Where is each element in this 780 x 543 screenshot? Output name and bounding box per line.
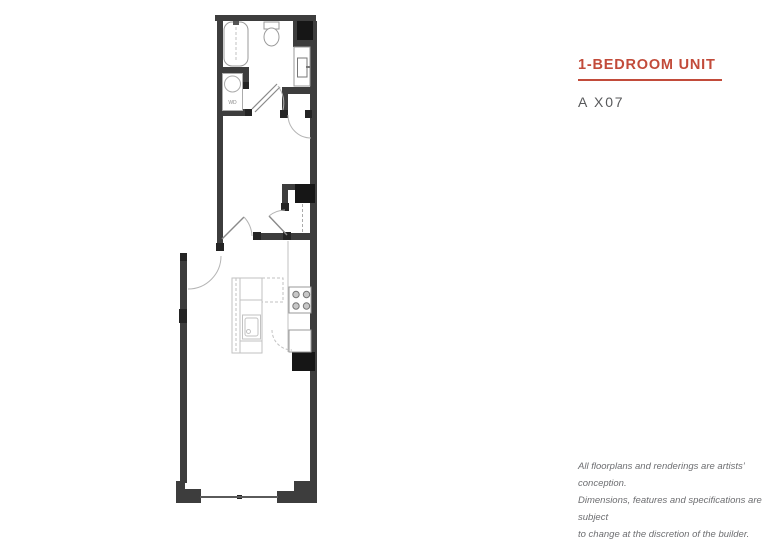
vanity-faucet-icon xyxy=(306,66,310,68)
title-underline xyxy=(578,79,722,81)
toilet-bowl xyxy=(264,28,279,46)
bedroom-entry-door-arc xyxy=(288,115,311,138)
bathroom-door-leaf xyxy=(252,84,277,109)
walls xyxy=(176,15,317,503)
bathroom-door-leaf2 xyxy=(255,87,280,112)
window-line xyxy=(200,496,278,498)
bathtub-faucet-icon xyxy=(233,21,239,25)
page-title: 1-BEDROOM UNIT xyxy=(578,57,778,73)
washer-drum xyxy=(225,76,241,92)
burner xyxy=(303,291,309,297)
burner xyxy=(293,291,299,297)
disclaimer-line: All floorplans and renderings are artist… xyxy=(578,458,768,492)
info-panel: 1-BEDROOM UNIT A X07 xyxy=(578,57,778,110)
unit-entry-door-arc xyxy=(188,256,221,289)
burner xyxy=(303,303,309,309)
bedroom-south-door-leaf xyxy=(222,217,244,239)
unit-code: A X07 xyxy=(578,94,778,110)
disclaimer-line: to change at the discretion of the build… xyxy=(578,526,768,543)
kitchen-fixtures xyxy=(232,204,311,353)
base-cabinet xyxy=(289,330,311,352)
disclaimer: All floorplans and renderings are artist… xyxy=(578,458,768,543)
disclaimer-line: Dimensions, features and specifications … xyxy=(578,492,768,526)
washer-dryer-label: WD xyxy=(228,100,237,106)
vanity-basin xyxy=(298,58,308,77)
closet-door-leaf xyxy=(269,216,287,235)
bedroom-south-door-arc xyxy=(244,217,252,236)
upper-cabinets-dashed xyxy=(262,278,283,302)
sink-drain xyxy=(247,330,251,334)
burner xyxy=(293,303,299,309)
